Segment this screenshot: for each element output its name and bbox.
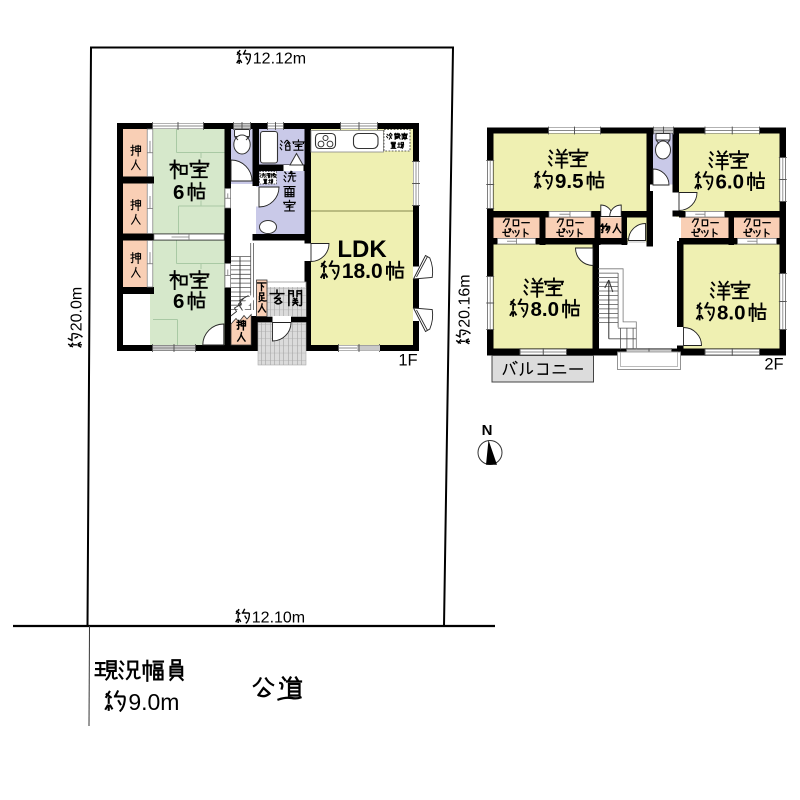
- svg-text:2F: 2F: [764, 355, 783, 373]
- svg-text:12.10m: 12.10m: [252, 609, 305, 626]
- svg-text:6.0: 6.0: [715, 170, 744, 193]
- svg-text:1F: 1F: [398, 351, 417, 369]
- svg-text:8.0: 8.0: [530, 298, 559, 321]
- svg-text:20.0m: 20.0m: [68, 287, 85, 331]
- svg-text:18.0: 18.0: [342, 260, 383, 283]
- svg-text:12.12m: 12.12m: [253, 50, 306, 67]
- svg-text:6: 6: [173, 181, 184, 204]
- svg-text:6: 6: [173, 290, 184, 313]
- svg-text:9.0m: 9.0m: [128, 689, 179, 715]
- svg-text:20.16m: 20.16m: [456, 274, 473, 327]
- svg-text:8.0: 8.0: [717, 301, 746, 324]
- svg-text:LDK: LDK: [337, 236, 387, 263]
- svg-text:9.5: 9.5: [555, 170, 584, 193]
- svg-text:N: N: [482, 422, 493, 439]
